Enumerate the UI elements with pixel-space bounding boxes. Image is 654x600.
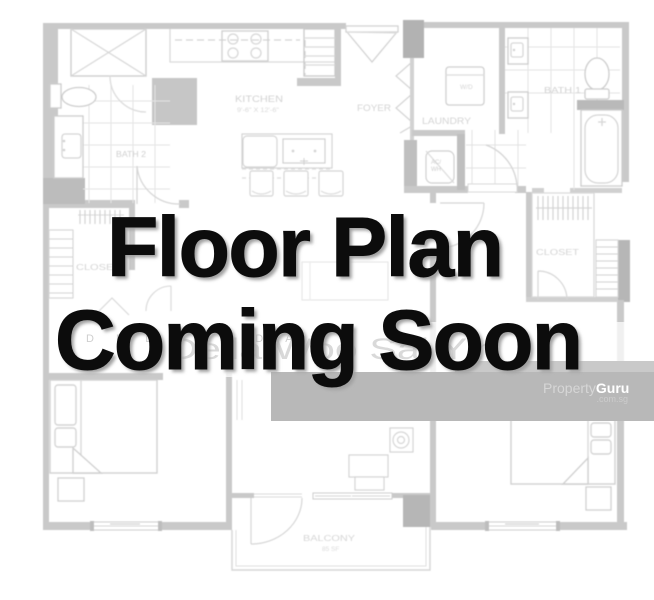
svg-text:BALCONY: BALCONY xyxy=(303,533,355,543)
svg-text:.com.sg: .com.sg xyxy=(596,394,628,404)
svg-text:FOYER: FOYER xyxy=(357,103,392,113)
svg-text:LAUNDRY: LAUNDRY xyxy=(422,116,471,126)
svg-text:Coming Soon: Coming Soon xyxy=(55,293,583,387)
svg-text:WH: WH xyxy=(431,167,441,173)
svg-text:W/D: W/D xyxy=(460,84,473,91)
svg-text:CLOSET: CLOSET xyxy=(536,247,579,257)
svg-text:AC/: AC/ xyxy=(431,160,441,166)
svg-text:KITCHEN: KITCHEN xyxy=(235,94,283,104)
svg-text:85 SF: 85 SF xyxy=(322,546,339,553)
svg-text:BATH 1: BATH 1 xyxy=(544,86,582,95)
svg-text:Floor Plan: Floor Plan xyxy=(107,200,504,294)
svg-text:9'-6" X 12'-6": 9'-6" X 12'-6" xyxy=(237,107,280,114)
svg-text:BATH 2: BATH 2 xyxy=(116,150,147,159)
